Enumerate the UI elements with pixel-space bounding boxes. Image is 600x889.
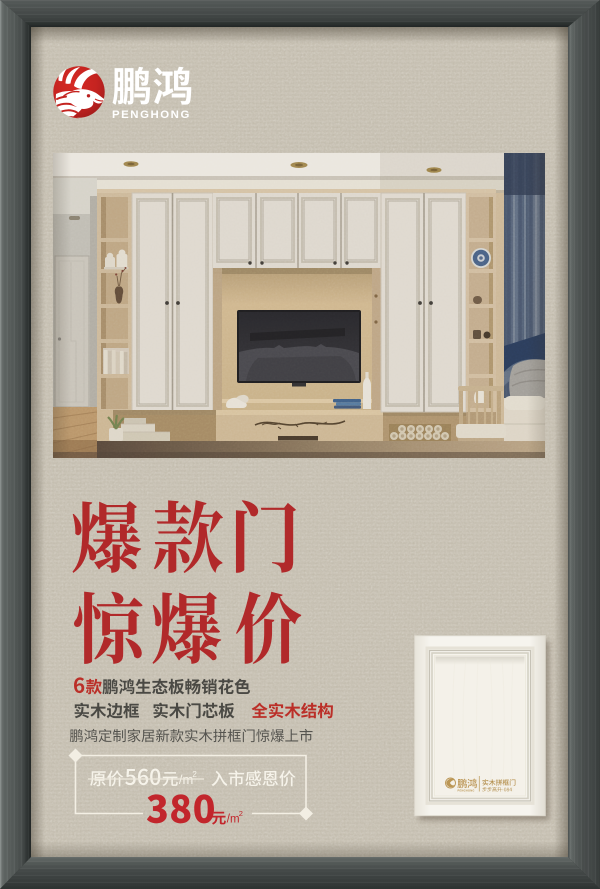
svg-text:PENGHONG: PENGHONG xyxy=(112,109,191,121)
svg-text:2: 2 xyxy=(192,770,197,779)
svg-text:PENGHONG: PENGHONG xyxy=(458,788,475,792)
svg-text:/m: /m xyxy=(227,814,240,826)
svg-text:2: 2 xyxy=(239,809,243,818)
